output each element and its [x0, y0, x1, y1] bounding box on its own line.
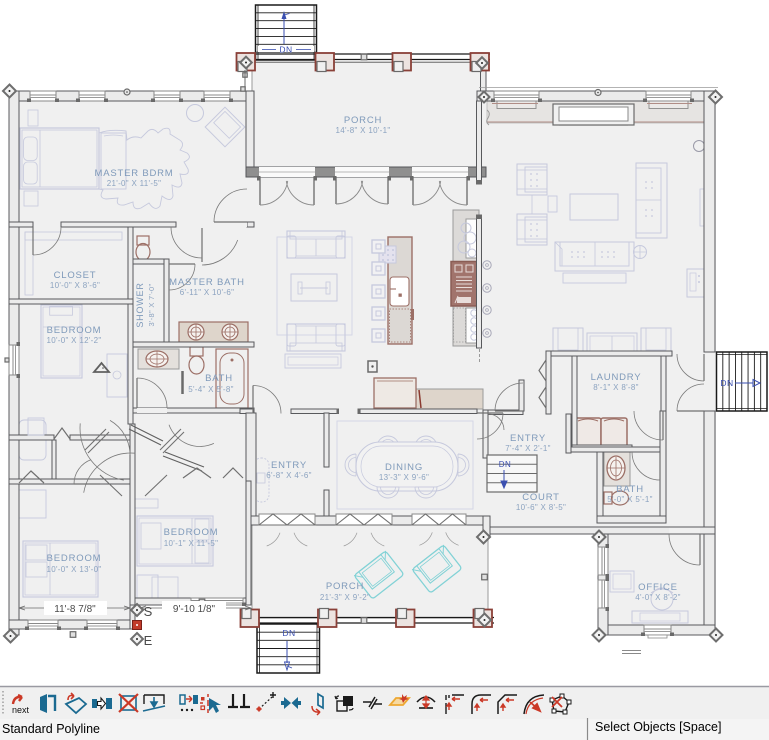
- svg-text:8'-1" X 8'-8": 8'-1" X 8'-8": [593, 383, 639, 392]
- svg-text:BEDROOM: BEDROOM: [164, 527, 219, 538]
- svg-text:ENTRY: ENTRY: [271, 460, 307, 471]
- svg-text:COURT: COURT: [522, 492, 560, 503]
- svg-text:DN: DN: [499, 460, 512, 469]
- svg-text:10'-0" X 8'-6": 10'-0" X 8'-6": [50, 281, 100, 290]
- svg-text:21'-3" X 9'-2": 21'-3" X 9'-2": [320, 593, 370, 602]
- svg-text:6'-8" X 4'-6": 6'-8" X 4'-6": [266, 471, 312, 480]
- svg-text:DN: DN: [279, 45, 292, 55]
- svg-text:MASTER BATH: MASTER BATH: [169, 277, 245, 288]
- svg-text:MASTER BDRM: MASTER BDRM: [95, 168, 174, 179]
- svg-text:4'-0" X 8'-2": 4'-0" X 8'-2": [635, 593, 681, 602]
- svg-text:CLOSET: CLOSET: [54, 270, 97, 281]
- svg-text:10'-0" X 12'-2": 10'-0" X 12'-2": [46, 336, 101, 345]
- svg-text:S: S: [144, 604, 153, 619]
- svg-text:DN: DN: [720, 378, 733, 388]
- svg-text:BEDROOM: BEDROOM: [47, 553, 102, 564]
- svg-text:DINING: DINING: [385, 462, 423, 473]
- svg-text:14'-8" X 10'-1": 14'-8" X 10'-1": [335, 126, 390, 135]
- svg-text:BEDROOM: BEDROOM: [47, 325, 102, 336]
- svg-text:BATH: BATH: [205, 373, 233, 384]
- svg-text:13'-3" X 9'-6": 13'-3" X 9'-6": [379, 473, 429, 482]
- svg-text:21'-0" X 11'-5": 21'-0" X 11'-5": [107, 179, 161, 188]
- svg-text:Standard Polyline: Standard Polyline: [2, 722, 100, 736]
- svg-text:LAUNDRY: LAUNDRY: [591, 372, 642, 383]
- svg-text:PORCH: PORCH: [344, 115, 382, 126]
- svg-text:E: E: [144, 633, 153, 648]
- svg-text:10'-0" X 13'-0": 10'-0" X 13'-0": [46, 565, 101, 574]
- svg-text:BATH: BATH: [616, 484, 644, 495]
- svg-text:DN: DN: [282, 628, 295, 638]
- svg-text:9'-10 1/8": 9'-10 1/8": [173, 604, 216, 615]
- svg-text:5'-0" X 5'-1": 5'-0" X 5'-1": [607, 495, 653, 504]
- svg-text:PORCH: PORCH: [326, 581, 364, 592]
- svg-text:7'-4" X 2'-1": 7'-4" X 2'-1": [505, 444, 551, 453]
- svg-text:6'-11" X 10'-6": 6'-11" X 10'-6": [180, 288, 234, 297]
- svg-text:10'-6" X 8'-5": 10'-6" X 8'-5": [516, 503, 566, 512]
- svg-text:ENTRY: ENTRY: [510, 433, 546, 444]
- svg-text:SHOWER: SHOWER: [135, 282, 145, 327]
- svg-text:3'-8" X 7'-0": 3'-8" X 7'-0": [147, 284, 156, 327]
- svg-text:10'-1" X 11'-5": 10'-1" X 11'-5": [164, 539, 218, 548]
- svg-text:OFFICE: OFFICE: [638, 582, 678, 593]
- svg-text:11'-8 7/8": 11'-8 7/8": [54, 604, 96, 615]
- svg-text:Select Objects [Space]: Select Objects [Space]: [595, 720, 721, 734]
- svg-text:next: next: [12, 705, 30, 715]
- svg-text:5'-4" X 5'-8": 5'-4" X 5'-8": [188, 385, 234, 394]
